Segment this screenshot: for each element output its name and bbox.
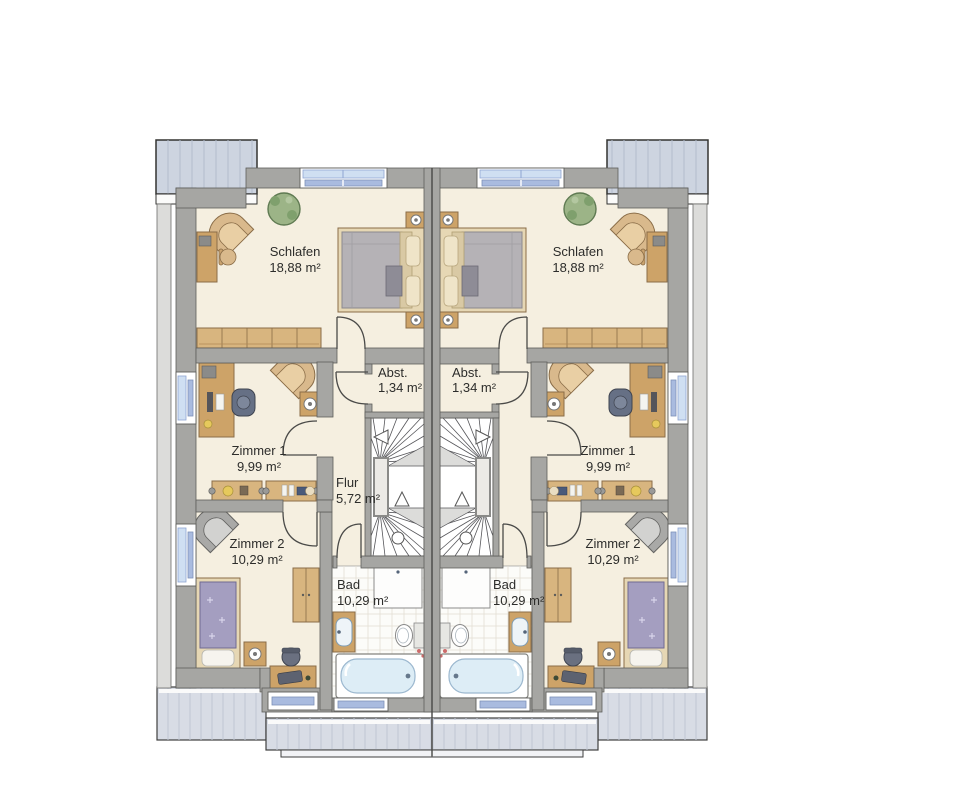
room1-east-wall	[317, 457, 333, 500]
printer	[202, 366, 216, 378]
room-label-schlafen-right: Schlafen	[553, 244, 604, 259]
window-north	[300, 168, 387, 188]
bedroom-south-wall	[196, 348, 337, 363]
party-wall	[424, 168, 432, 712]
stair-north-wall	[365, 412, 432, 418]
room-area-bad-left: 10,29 m²	[337, 593, 389, 608]
monitor	[207, 392, 213, 412]
floor-plan-svg: Schlafen 18,88 m² Schlafen 18,88 m² Abst…	[0, 0, 956, 800]
desk-lamp	[204, 420, 212, 428]
double-bed	[338, 228, 424, 312]
room-label-bad-left: Bad	[337, 577, 360, 592]
room-label-zimmer2-left: Zimmer 2	[230, 536, 285, 551]
bath-west-wall	[320, 512, 332, 710]
nightstand	[406, 212, 426, 228]
roof-eave-strip	[157, 204, 171, 688]
newel-post	[392, 532, 404, 544]
wardrobe	[293, 568, 319, 622]
unit-graphics	[156, 140, 432, 757]
room-divider-wall	[196, 500, 283, 512]
stairwell-void	[374, 458, 388, 516]
window-west	[176, 524, 196, 586]
window-west	[176, 372, 196, 424]
side-table-lamp	[244, 642, 266, 666]
corner-wall	[176, 188, 246, 208]
keyboard	[216, 394, 224, 410]
pillow	[406, 236, 420, 266]
terrace-step-edge	[281, 750, 432, 757]
room-area-zimmer1-left: 9,99 m²	[237, 459, 282, 474]
room-area-abst-left: 1,34 m²	[378, 380, 423, 395]
room-area-bad-right: 10,29 m²	[493, 593, 545, 608]
stairs	[371, 418, 424, 556]
room-label-zimmer1-left: Zimmer 1	[232, 443, 287, 458]
bathtub	[336, 649, 425, 698]
window-south	[268, 692, 318, 710]
unit-right-graphics	[432, 140, 708, 757]
room-area-zimmer2-right: 10,29 m²	[587, 552, 639, 567]
pillow	[406, 276, 420, 306]
wardrobe	[197, 328, 321, 348]
nightstand	[406, 312, 426, 328]
room-area-zimmer1-right: 9,99 m²	[586, 459, 631, 474]
room-area-schlafen-right: 18,88 m²	[552, 260, 604, 275]
toilet	[396, 623, 425, 648]
room1-east-wall	[317, 362, 333, 417]
bath-north-wall	[361, 556, 432, 568]
stair-west-wall	[365, 418, 371, 556]
single-bed	[196, 578, 240, 670]
window-south	[334, 698, 388, 711]
room-divider-wall	[317, 500, 332, 512]
room-label-bad-right: Bad	[493, 577, 516, 592]
room-label-abst-right: Abst.	[452, 365, 482, 380]
exterior-wall-south	[176, 668, 260, 688]
bedroom-plant	[268, 193, 300, 225]
exterior-wall-west	[176, 188, 196, 688]
pillow	[202, 650, 234, 666]
room-area-flur-left: 5,72 m²	[336, 491, 381, 506]
blanket	[386, 266, 402, 296]
room-area-zimmer2-left: 10,29 m²	[231, 552, 283, 567]
room-label-abst-left: Abst.	[378, 365, 408, 380]
room-label-schlafen-left: Schlafen	[270, 244, 321, 259]
room-area-schlafen-left: 18,88 m²	[269, 260, 321, 275]
room-label-flur-left: Flur	[336, 475, 359, 490]
chair	[220, 249, 236, 265]
room-label-zimmer1-right: Zimmer 1	[581, 443, 636, 458]
room-label-zimmer2-right: Zimmer 2	[586, 536, 641, 551]
sink	[333, 612, 355, 652]
room-area-abst-right: 1,34 m²	[452, 380, 497, 395]
storage-north-wall	[365, 348, 432, 364]
floor-plan-page: Schlafen 18,88 m² Schlafen 18,88 m² Abst…	[0, 0, 956, 800]
